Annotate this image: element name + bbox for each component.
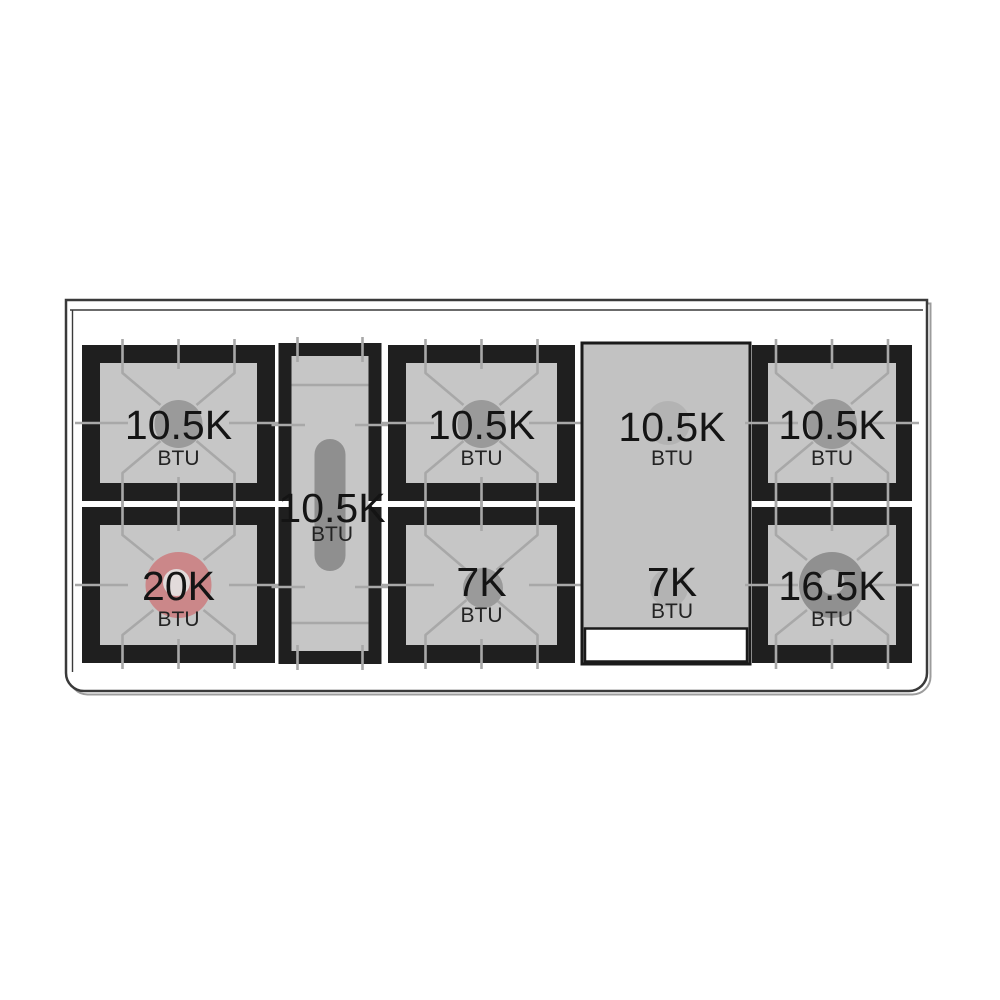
- burner-btu-value: 10.5K: [778, 402, 885, 448]
- burner-btu-unit: BTU: [158, 447, 200, 470]
- burner-btu-unit: BTU: [158, 608, 200, 631]
- burner-btu-value: 10.5K: [618, 404, 725, 450]
- burner-btu-unit: BTU: [811, 608, 853, 631]
- griddle-handle-tray: [585, 629, 747, 662]
- grate-right-top: 10.5K BTU: [745, 339, 919, 507]
- burner-btu-value: 7K: [456, 559, 506, 605]
- cooktop-burner-diagram: 10.5K BTU 20K BTU 10.5K BTU: [0, 0, 1000, 1000]
- burner-btu-value: 10.5K: [125, 402, 232, 448]
- range-top-diagram-svg: 10.5K BTU 20K BTU 10.5K BTU: [0, 0, 1000, 1000]
- burner-btu-unit: BTU: [461, 604, 503, 627]
- burner-btu-unit: BTU: [461, 447, 503, 470]
- grate-middle-bottom: 7K BTU: [381, 501, 582, 669]
- grate-section-oval: 10.5K BTU: [272, 337, 389, 670]
- grate-middle-top: 10.5K BTU: [381, 339, 582, 507]
- burner-btu-value: 10.5K: [428, 402, 535, 448]
- burner-btu-unit: BTU: [651, 447, 693, 470]
- griddle-section: 10.5K BTU 7K BTU: [582, 343, 750, 664]
- burner-label-middle-bottom: 7K BTU: [456, 559, 506, 627]
- burner-btu-unit: BTU: [311, 523, 353, 546]
- burner-btu-value: 16.5K: [778, 563, 885, 609]
- grate-right-bottom: 16.5K BTU: [745, 501, 919, 669]
- burner-btu-value: 20K: [142, 563, 215, 609]
- burner-btu-unit: BTU: [811, 447, 853, 470]
- burner-btu-unit: BTU: [651, 600, 693, 623]
- grate-left-top: 10.5K BTU: [75, 339, 282, 507]
- burner-label-griddle-bottom: 7K BTU: [647, 559, 697, 623]
- grate-left-bottom: 20K BTU: [75, 501, 282, 669]
- burner-btu-value: 7K: [647, 559, 697, 605]
